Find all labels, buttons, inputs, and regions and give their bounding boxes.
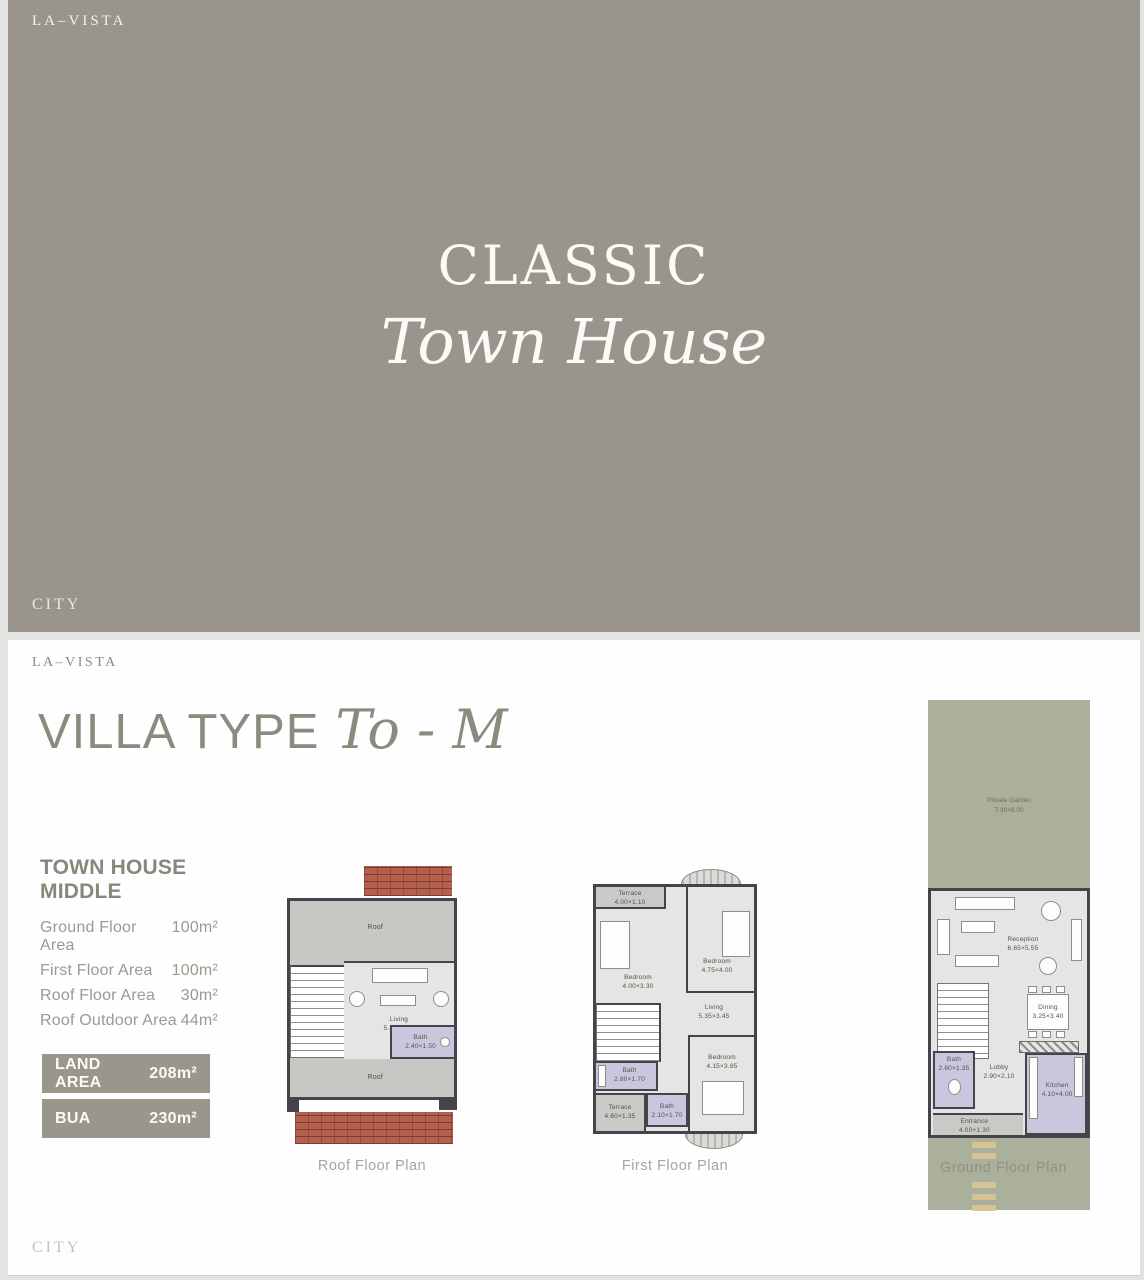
bathroom: Bath 2.40×1.50 bbox=[390, 1025, 454, 1059]
entrance: Entrance 4.00×1.30 bbox=[933, 1113, 1023, 1135]
villa-type-slide: LA–VISTA VILLA TYPETo - M TOWN HOUSE MID… bbox=[8, 640, 1140, 1275]
terrace-bottom-label: Terrace 4.60×1.35 bbox=[605, 1103, 636, 1122]
room-dims: 4.60×1.35 bbox=[605, 1112, 636, 1121]
dining-label: Dining 3.25×3.40 bbox=[1033, 1003, 1064, 1022]
room-name: Living bbox=[699, 1003, 730, 1012]
room-dims: 2.60×1.35 bbox=[939, 1064, 970, 1073]
badge-label: LAND AREA bbox=[55, 1056, 149, 1092]
dining-chair bbox=[1042, 1031, 1051, 1038]
room-dims: 2.40×1.50 bbox=[405, 1042, 436, 1051]
kitchen-counter bbox=[1029, 1057, 1038, 1119]
ground-building-outline: Reception 6.65×5.55 Dining 3.25×3.40 Bat… bbox=[928, 888, 1090, 1138]
room-name: Bedroom bbox=[623, 973, 654, 982]
private-garden: Private Garden 7.30×8.00 bbox=[928, 700, 1090, 890]
spec-row: Ground Floor Area 100m² bbox=[40, 915, 218, 958]
first-building-outline: Terrace 4.00×1.10 Bedroom 4.00×3.30 Bedr… bbox=[593, 884, 757, 1134]
wall-stub bbox=[287, 1098, 299, 1112]
room-dims: 2.90×2.10 bbox=[984, 1072, 1015, 1081]
roof-floor-plan: Roof Living 5.35×3.30 Bath 2.40×1.50 bbox=[287, 866, 457, 1152]
badge-value: 208m² bbox=[149, 1065, 197, 1083]
stairs bbox=[937, 983, 989, 1059]
room-dims: 4.10×4.00 bbox=[1042, 1090, 1073, 1099]
bathroom-left: Bath 2.80×1.70 bbox=[596, 1061, 658, 1091]
room-dims: 2.80×1.70 bbox=[614, 1075, 645, 1084]
room-dims: 3.25×3.40 bbox=[1033, 1012, 1064, 1021]
bathroom-label: Bath 2.40×1.50 bbox=[405, 1033, 436, 1052]
room-name: Lobby bbox=[984, 1063, 1015, 1072]
first-floor-plan: Terrace 4.00×1.10 Bedroom 4.00×3.30 Bedr… bbox=[593, 866, 757, 1160]
spec-title: TOWN HOUSE MIDDLE bbox=[40, 856, 218, 904]
brand-lavista: LA–VISTA bbox=[32, 13, 126, 30]
stairs bbox=[596, 1003, 661, 1062]
spec-row: First Floor Area 100m² bbox=[40, 958, 218, 983]
wall-stub bbox=[439, 1098, 457, 1110]
page-title-main: VILLA TYPE bbox=[38, 705, 320, 759]
roof-area-label-top: Roof bbox=[367, 923, 383, 933]
brand-city: CITY bbox=[32, 1239, 81, 1257]
living-label: Living 5.35×3.45 bbox=[699, 1003, 730, 1022]
bedroom-left: Bedroom 4.00×3.30 bbox=[596, 911, 672, 1001]
brand-lavista: LA–VISTA bbox=[32, 655, 118, 671]
cover-title: CLASSIC Town House bbox=[8, 234, 1140, 378]
sofa bbox=[937, 919, 950, 955]
area-badges: LAND AREA 208m² BUA 230m² bbox=[42, 1054, 210, 1144]
bathtub bbox=[598, 1065, 606, 1087]
doormat-hatch bbox=[1019, 1041, 1079, 1053]
room-name: Terrace bbox=[615, 889, 646, 898]
spec-rows: Ground Floor Area 100m² First Floor Area… bbox=[40, 915, 218, 1033]
room-name: Kitchen bbox=[1042, 1081, 1073, 1090]
toilet bbox=[948, 1079, 961, 1095]
bathroom-middle: Bath 2.10×1.70 bbox=[646, 1093, 688, 1127]
land-area-badge: LAND AREA 208m² bbox=[42, 1054, 210, 1093]
room-dims: 2.10×1.70 bbox=[652, 1111, 683, 1120]
kitchen-label: Kitchen 4.10×4.00 bbox=[1042, 1081, 1073, 1100]
terrace-fan-arc bbox=[685, 1134, 743, 1149]
bedroom-right: Bedroom 4.75×4.00 bbox=[686, 887, 754, 993]
balcony-awning-arc bbox=[681, 869, 741, 884]
room-dims: 4.15×3.85 bbox=[707, 1062, 738, 1071]
neighbor-roof-brick-top bbox=[364, 866, 452, 896]
driveway-dash bbox=[972, 1182, 996, 1188]
cover-title-classic: CLASSIC bbox=[8, 234, 1140, 297]
bed bbox=[702, 1081, 744, 1115]
spec-label: Roof Outdoor Area bbox=[40, 1012, 177, 1030]
room-name: Bath bbox=[405, 1033, 436, 1042]
dining-chair bbox=[1028, 1031, 1037, 1038]
room-name: Living bbox=[384, 1015, 415, 1024]
roof-plan-caption: Roof Floor Plan bbox=[285, 1158, 459, 1174]
room-name: Bath bbox=[614, 1066, 645, 1075]
dining-chair bbox=[1056, 1031, 1065, 1038]
kitchen: Kitchen 4.10×4.00 bbox=[1025, 1053, 1087, 1135]
cover-title-townhouse: Town House bbox=[8, 305, 1140, 378]
room-name: Reception bbox=[1007, 935, 1038, 944]
room-name: Terrace bbox=[605, 1103, 636, 1112]
driveway-dash bbox=[972, 1153, 996, 1159]
ground-plan-caption: Ground Floor Plan bbox=[940, 1160, 1067, 1176]
terrace-bottom: Terrace 4.60×1.35 bbox=[596, 1093, 646, 1131]
first-plan-caption: First Floor Plan bbox=[591, 1158, 759, 1174]
room-dims: 6.65×5.55 bbox=[1007, 944, 1038, 953]
bathroom-label: Bath 2.60×1.35 bbox=[939, 1055, 970, 1074]
kitchen-counter bbox=[1074, 1057, 1083, 1097]
badge-label: BUA bbox=[55, 1110, 91, 1128]
page-title: VILLA TYPETo - M bbox=[38, 698, 508, 761]
entrance-label: Entrance 4.00×1.30 bbox=[959, 1117, 990, 1136]
reception-label: Reception 6.65×5.55 bbox=[1007, 935, 1038, 954]
coffee-table bbox=[380, 995, 416, 1006]
room-name: Entrance bbox=[959, 1117, 990, 1126]
dining-chair bbox=[1042, 986, 1051, 993]
neighbor-roof-brick-bottom bbox=[295, 1112, 453, 1144]
spec-value: 100m² bbox=[172, 919, 218, 955]
badge-value: 230m² bbox=[149, 1110, 197, 1128]
driveway-dash bbox=[972, 1142, 996, 1148]
dining-chair bbox=[1028, 986, 1037, 993]
bed bbox=[600, 921, 630, 969]
spec-label: First Floor Area bbox=[40, 962, 153, 980]
armchair bbox=[433, 991, 449, 1007]
armchair bbox=[349, 991, 365, 1007]
bed bbox=[722, 911, 750, 957]
room-name: Bedroom bbox=[702, 957, 733, 966]
area-spec-block: TOWN HOUSE MIDDLE Ground Floor Area 100m… bbox=[40, 856, 218, 1033]
bua-badge: BUA 230m² bbox=[42, 1099, 210, 1138]
spec-row: Roof Floor Area 30m² bbox=[40, 983, 218, 1008]
ground-floor-plan: Private Garden 7.30×8.00 Reception 6.65×… bbox=[928, 700, 1090, 1210]
spec-value: 44m² bbox=[181, 1012, 218, 1030]
page-title-script: To - M bbox=[336, 698, 508, 761]
coffee-table bbox=[961, 921, 995, 933]
room-dims: 5.35×3.45 bbox=[699, 1012, 730, 1021]
side-table bbox=[1039, 957, 1057, 975]
side-table bbox=[1041, 901, 1061, 921]
terrace-top: Terrace 4.00×1.10 bbox=[596, 887, 666, 909]
terrace-top-label: Terrace 4.00×1.10 bbox=[615, 889, 646, 908]
room-name: Bath bbox=[939, 1055, 970, 1064]
roof-building-outline: Roof Living 5.35×3.30 Bath 2.40×1.50 bbox=[287, 898, 457, 1100]
stairs bbox=[290, 965, 347, 1058]
sideboard bbox=[1071, 919, 1082, 961]
bathroom-left-label: Bath 2.80×1.70 bbox=[614, 1066, 645, 1085]
sink bbox=[440, 1037, 450, 1047]
room-dims: 4.00×1.30 bbox=[959, 1126, 990, 1135]
cover-slide: LA–VISTA CLASSIC Town House CITY bbox=[8, 0, 1140, 632]
room-name: Bedroom bbox=[707, 1053, 738, 1062]
bedroom-right-label: Bedroom 4.75×4.00 bbox=[702, 957, 733, 976]
room-dims: 4.00×3.30 bbox=[623, 982, 654, 991]
room-name: Dining bbox=[1033, 1003, 1064, 1012]
sofa bbox=[372, 968, 428, 983]
room-name: Bath bbox=[652, 1102, 683, 1111]
driveway-dash bbox=[972, 1205, 996, 1211]
bedroom-left-label: Bedroom 4.00×3.30 bbox=[623, 973, 654, 992]
bathroom: Bath 2.60×1.35 bbox=[933, 1051, 975, 1109]
spec-label: Ground Floor Area bbox=[40, 919, 172, 955]
room-dims: 7.30×8.00 bbox=[987, 806, 1031, 816]
spec-value: 100m² bbox=[172, 962, 218, 980]
sofa bbox=[955, 897, 1015, 910]
bathroom-middle-label: Bath 2.10×1.70 bbox=[652, 1102, 683, 1121]
spec-label: Roof Floor Area bbox=[40, 987, 155, 1005]
room-name: Private Garden bbox=[987, 796, 1031, 806]
bedroom-bottom: Bedroom 4.15×3.85 bbox=[688, 1035, 754, 1131]
lobby-label: Lobby 2.90×2.10 bbox=[984, 1063, 1015, 1082]
driveway-dash bbox=[972, 1194, 996, 1200]
driveway: Ground Floor Plan bbox=[928, 1138, 1090, 1210]
spec-row: Roof Outdoor Area 44m² bbox=[40, 1008, 218, 1033]
spec-value: 30m² bbox=[181, 987, 218, 1005]
sofa bbox=[955, 955, 999, 967]
private-garden-label: Private Garden 7.30×8.00 bbox=[987, 796, 1031, 816]
roof-area-label-bottom: Roof bbox=[367, 1073, 383, 1083]
bedroom-bottom-label: Bedroom 4.15×3.85 bbox=[707, 1053, 738, 1072]
room-dims: 4.00×1.10 bbox=[615, 898, 646, 907]
dining-chair bbox=[1056, 986, 1065, 993]
brand-city: CITY bbox=[32, 596, 81, 614]
room-dims: 4.75×4.00 bbox=[702, 966, 733, 975]
